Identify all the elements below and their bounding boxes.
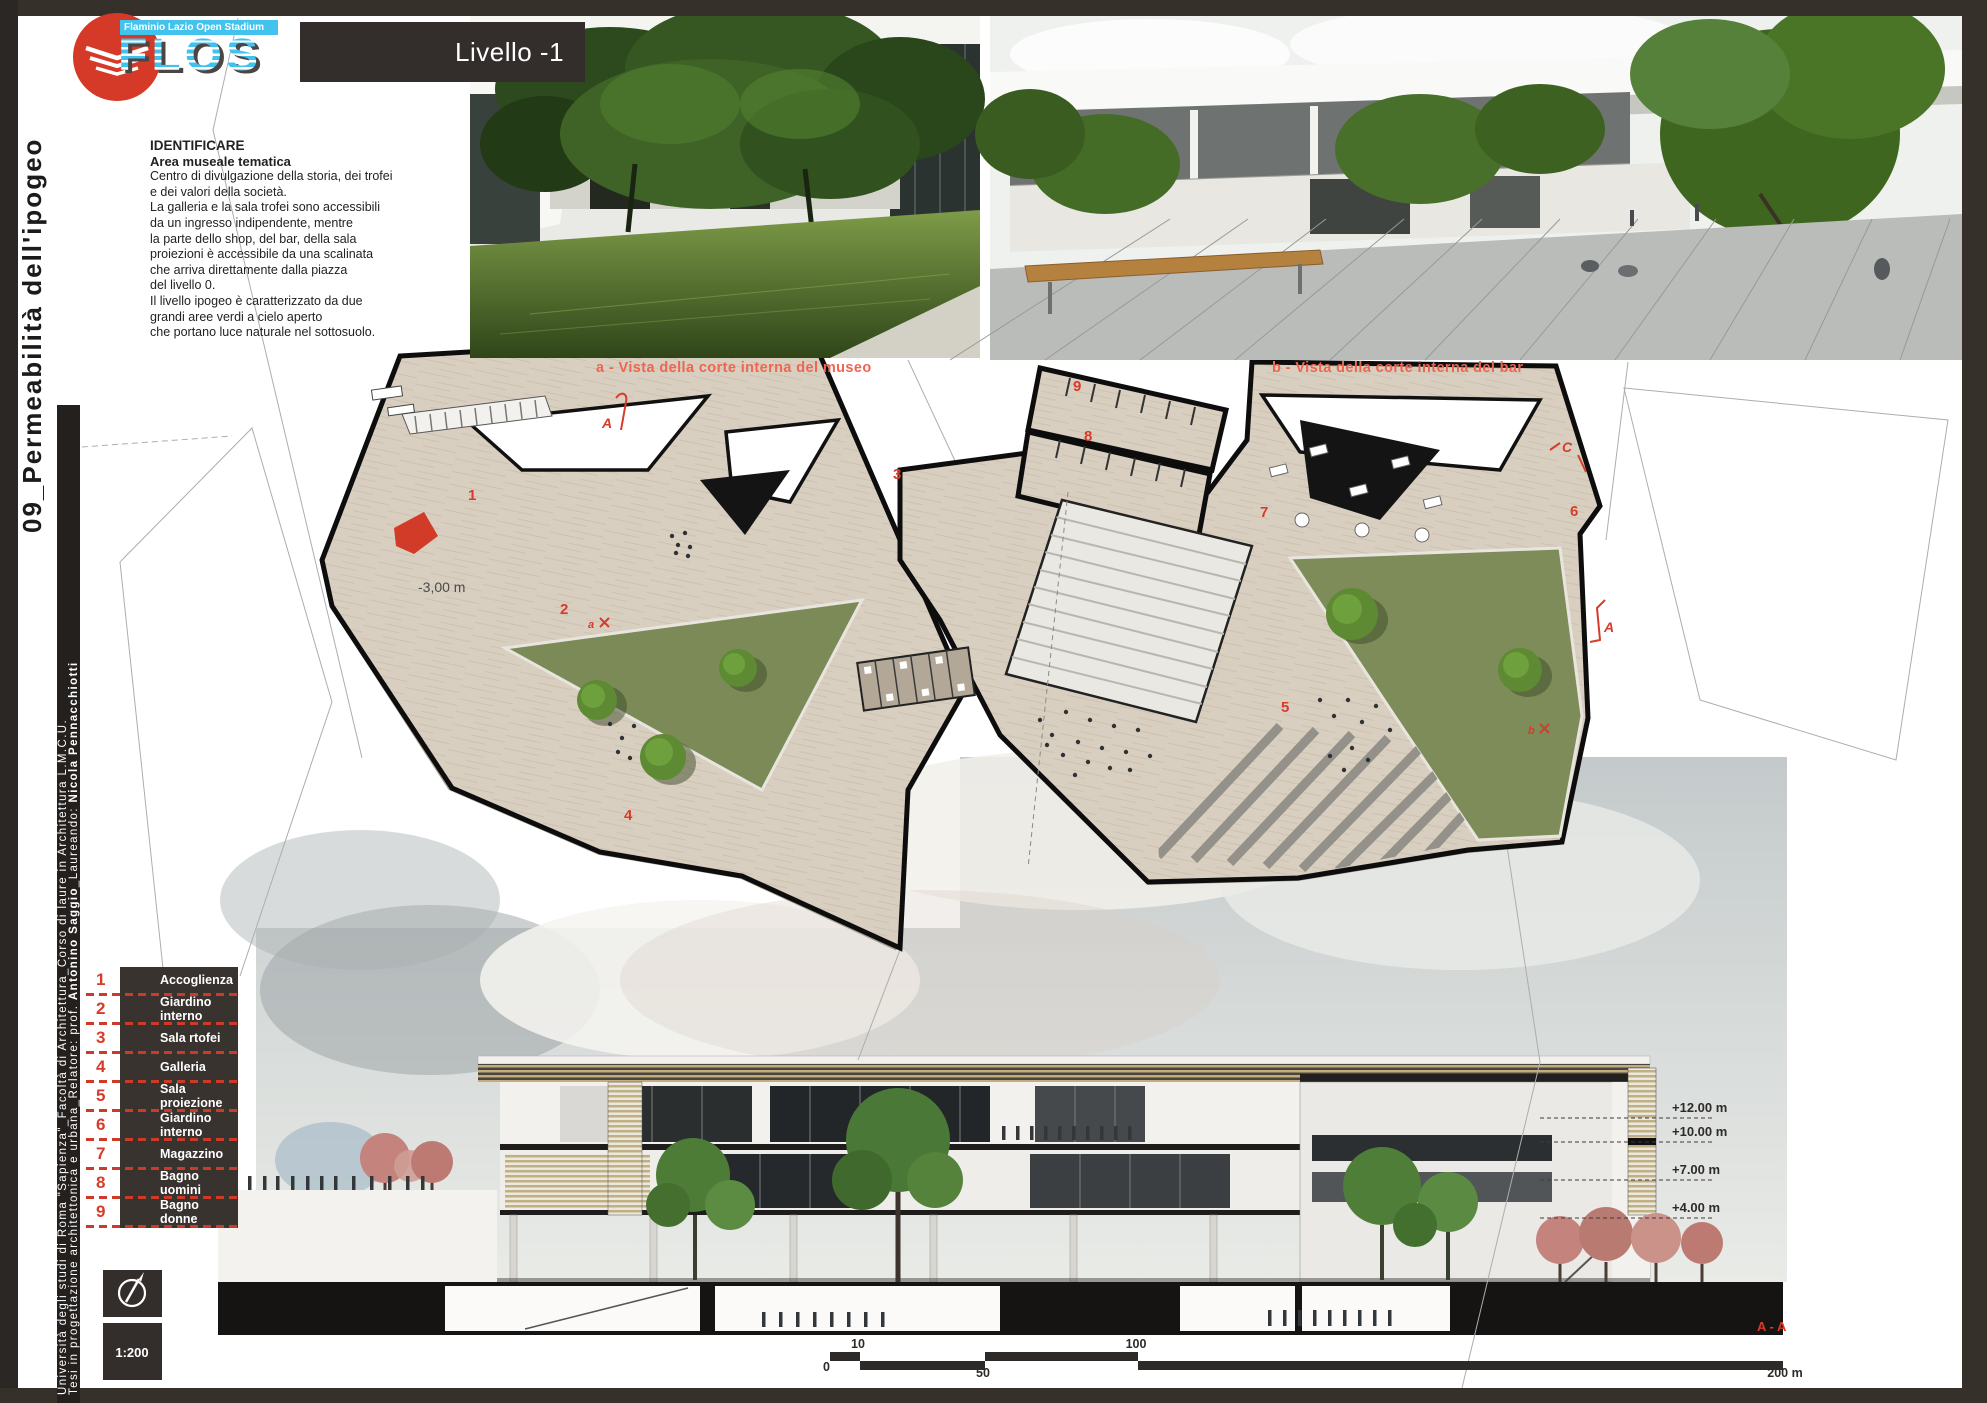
legend-number: 8	[86, 1173, 120, 1193]
legend-item: 1Accoglienza	[86, 967, 238, 993]
legend-label: Bagno donne	[120, 1199, 238, 1225]
description-line: Centro di divulgazione della storia, dei…	[150, 169, 435, 185]
legend-label: Galleria	[120, 1054, 238, 1080]
plan-elevation-label: -3,00 m	[418, 579, 465, 595]
render-a-caption: a - Vista della corte interna del museo	[596, 360, 872, 376]
legend-label: Giardino interno	[120, 996, 238, 1022]
frame-top	[0, 0, 1987, 16]
credit-2-mid: _Laureando:	[68, 802, 80, 887]
legend-number: 2	[86, 999, 120, 1019]
description-line: che arriva direttamente dalla piazza	[150, 263, 435, 279]
plaza-face	[218, 1190, 497, 1282]
legend-item: 9Bagno donne	[86, 1199, 238, 1225]
legend-number: 3	[86, 1028, 120, 1048]
legend-label: Giardino interno	[120, 1112, 238, 1138]
description-line: La galleria e la sala trofei sono access…	[150, 200, 435, 216]
room-number-7: 7	[1260, 504, 1268, 521]
legend-number: 7	[86, 1144, 120, 1164]
room-number-5: 5	[1281, 699, 1289, 716]
credit-line-1: Università degli studi di Roma "Sapienza…	[58, 410, 69, 1395]
description-line: proiezioni è accessibile da una scalinat…	[150, 247, 435, 263]
legend-number: 9	[86, 1202, 120, 1222]
section-marker-c: C	[1562, 439, 1573, 455]
description-line: Il livello ipogeo è caratterizzato da du…	[150, 294, 435, 310]
description-line: del livello 0.	[150, 278, 435, 294]
room-number-6: 6	[1570, 503, 1578, 520]
legend-number: 4	[86, 1057, 120, 1077]
scale-ratio-box: 1:200	[103, 1323, 162, 1380]
legend-item: 5Sala proiezione	[86, 1083, 238, 1109]
legend-number: 1	[86, 970, 120, 990]
description-block: IDENTIFICARE Area museale tematica Centr…	[150, 138, 435, 341]
legend-item: 6Giardino interno	[86, 1112, 238, 1138]
legend-divider	[86, 1225, 238, 1228]
credit-2-laureando: Nicola Pennacchiotti	[68, 661, 80, 802]
room-legend: 1Accoglienza 2Giardino interno 3Sala rto…	[86, 967, 238, 1228]
scale-label-200: 200 m	[1767, 1366, 1802, 1380]
description-line: che portano luce naturale nel sottosuolo…	[150, 325, 435, 341]
credit-2-pre: Tesi in progettazione architettonica e u…	[68, 1000, 80, 1395]
scale-ratio-label: 1:200	[115, 1345, 148, 1360]
description-line: e dei valori della società.	[150, 185, 435, 201]
elevation-label: +10.00 m	[1672, 1124, 1727, 1139]
scale-label-50: 50	[976, 1366, 990, 1380]
legend-label: Accoglienza	[120, 967, 238, 993]
camera-marker-b: b	[1528, 725, 1535, 737]
flos-logo: FLOS	[118, 29, 262, 81]
legend-number: 5	[86, 1086, 120, 1106]
legend-number: 6	[86, 1115, 120, 1135]
scale-label-100: 100	[1126, 1337, 1147, 1351]
elevation-label: +4.00 m	[1672, 1200, 1720, 1215]
credit-line-2: Tesi in progettazione architettonica e u…	[69, 410, 80, 1395]
room-number-9: 9	[1073, 378, 1081, 395]
legend-item: 4Galleria	[86, 1054, 238, 1080]
room-number-2: 2	[560, 601, 568, 618]
elevation-label: +12.00 m	[1672, 1100, 1727, 1115]
room-number-4: 4	[624, 807, 633, 824]
description-line: da un ingresso indipendente, mentre	[150, 216, 435, 232]
camera-marker-a: a	[588, 619, 594, 631]
frame-right	[1962, 0, 1987, 1403]
scale-label-10: 10	[851, 1337, 865, 1351]
legend-label: Sala proiezione	[120, 1083, 238, 1109]
render-b-caption: b - Vista della corte interna del bar	[1272, 360, 1523, 376]
room-number-1: 1	[468, 487, 476, 504]
presentation-board: A - A +12.00 m +10.00 m +7.00 m +4.00 m	[0, 0, 1987, 1403]
frame-left	[0, 0, 18, 1403]
sheet-title-vertical: 09_Permeabilità dell'ipogeo	[17, 48, 57, 533]
section-marker-a-top: A	[601, 415, 612, 431]
legend-label: Sala rtofei	[120, 1025, 238, 1051]
level-title: Livello -1	[300, 22, 585, 82]
description-title: IDENTIFICARE	[150, 138, 435, 154]
legend-label: Bagno uomini	[120, 1170, 238, 1196]
render-b-photo	[950, 0, 1962, 360]
north-box	[103, 1270, 162, 1317]
elevation-label: +7.00 m	[1672, 1162, 1720, 1177]
scale-label-0: 0	[823, 1360, 830, 1374]
description-line: la parte dello shop, del bar, della sala	[150, 232, 435, 248]
legend-item: 2Giardino interno	[86, 996, 238, 1022]
legend-label: Magazzino	[120, 1141, 238, 1167]
description-line: grandi aree verdi a cielo aperto	[150, 310, 435, 326]
ground-band: A - A	[218, 1282, 1787, 1335]
legend-item: 3Sala rtofei	[86, 1025, 238, 1051]
description-subtitle: Area museale tematica	[150, 154, 435, 170]
room-number-3: 3	[893, 466, 901, 483]
scale-bar: 10 100 0 50 200 m	[823, 1337, 1803, 1380]
section-cut-label: A - A	[1757, 1319, 1787, 1334]
section-marker-a-right: A	[1603, 619, 1614, 635]
room-number-8: 8	[1084, 428, 1092, 445]
legend-item: 7Magazzino	[86, 1141, 238, 1167]
frame-bottom	[0, 1388, 1987, 1403]
legend-item: 8Bagno uomini	[86, 1170, 238, 1196]
credit-2-relatore: Antonino Saggio	[68, 887, 80, 1000]
